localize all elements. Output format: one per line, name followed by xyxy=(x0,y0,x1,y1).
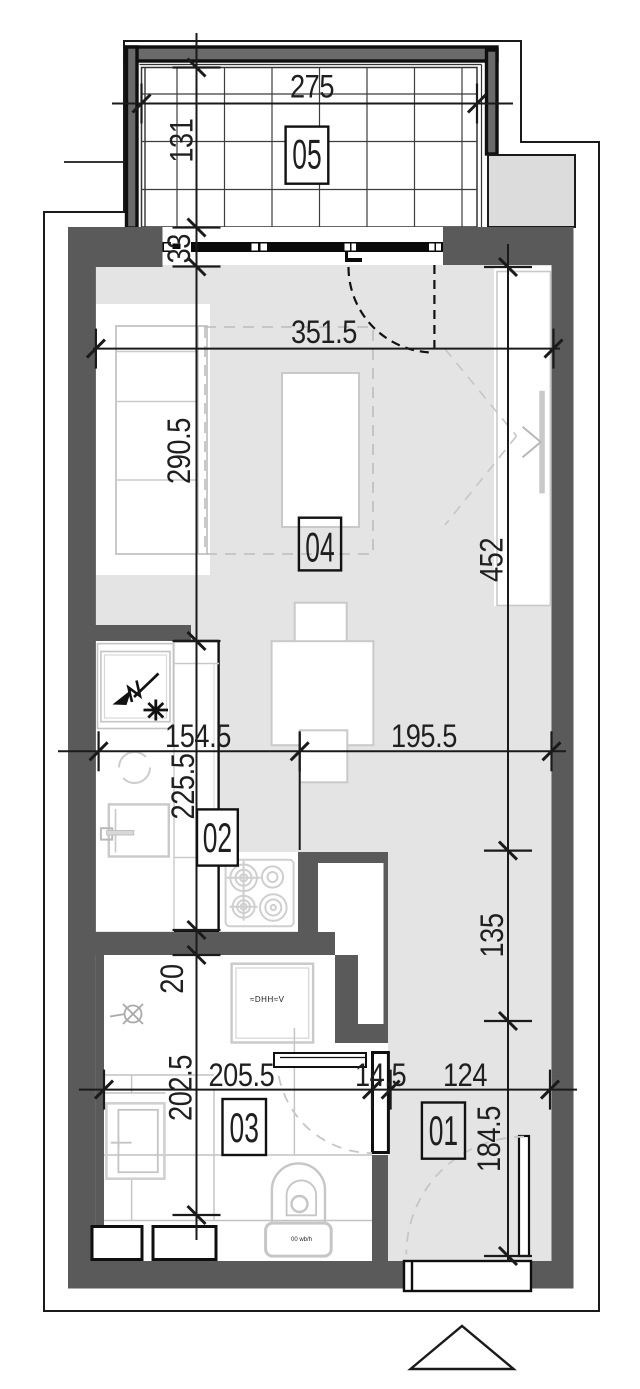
svg-text:20: 20 xyxy=(155,964,191,993)
svg-text:01: 01 xyxy=(429,1108,458,1155)
svg-text:00 wb/h: 00 wb/h xyxy=(291,1237,312,1243)
svg-text:124: 124 xyxy=(443,1058,487,1094)
svg-text:14.5: 14.5 xyxy=(355,1058,406,1094)
svg-text:≈DHH≈V: ≈DHH≈V xyxy=(250,995,285,1004)
svg-text:195.5: 195.5 xyxy=(391,719,457,755)
svg-text:290.5: 290.5 xyxy=(162,418,198,484)
svg-text:135: 135 xyxy=(475,913,511,957)
svg-text:351.5: 351.5 xyxy=(291,315,357,351)
svg-text:452: 452 xyxy=(474,538,510,582)
svg-text:205.5: 205.5 xyxy=(208,1058,274,1094)
svg-text:02: 02 xyxy=(203,815,232,862)
svg-text:33: 33 xyxy=(162,234,198,263)
svg-text:04: 04 xyxy=(305,524,334,571)
svg-text:03: 03 xyxy=(229,1105,258,1152)
svg-text:275: 275 xyxy=(290,69,334,105)
svg-text:131: 131 xyxy=(164,119,200,163)
svg-text:154.5: 154.5 xyxy=(165,719,231,755)
svg-text:184.5: 184.5 xyxy=(472,1106,508,1172)
svg-text:202.5: 202.5 xyxy=(163,1055,199,1121)
svg-text:05: 05 xyxy=(292,131,321,178)
